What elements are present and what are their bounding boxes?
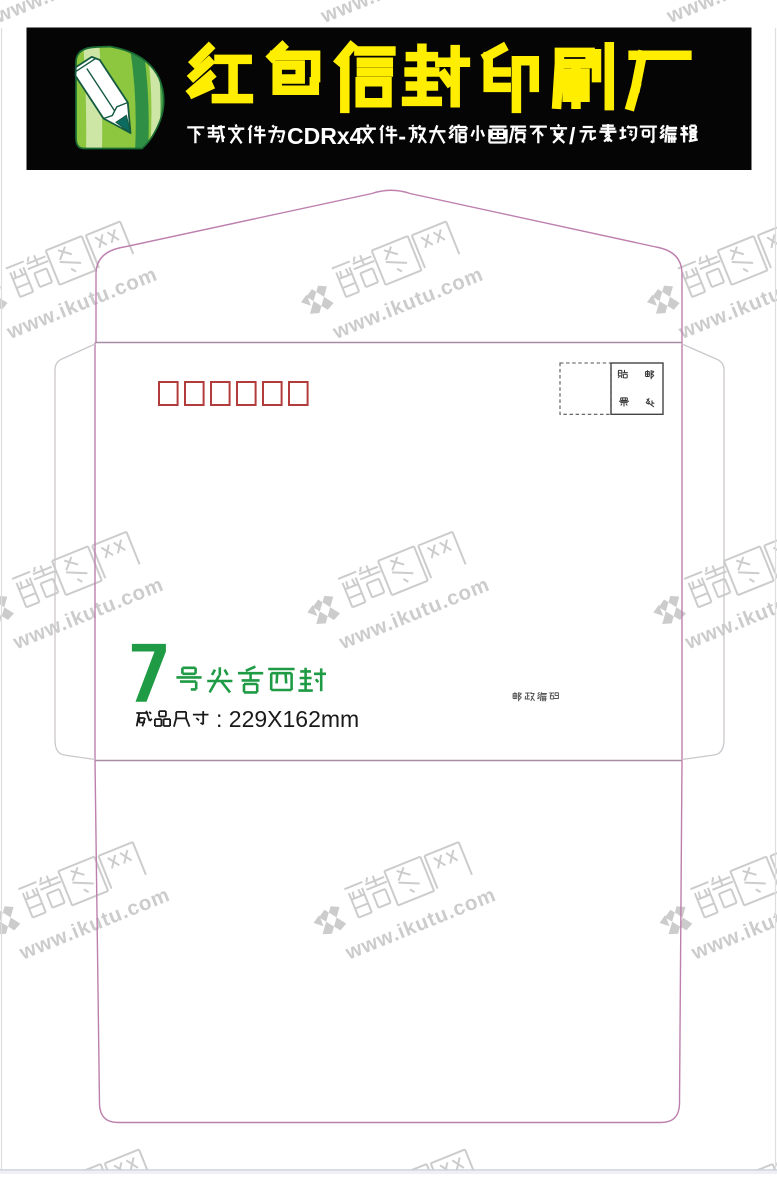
svg-text:: 229X162mm: : 229X162mm — [216, 706, 359, 732]
svg-text:-: - — [398, 123, 406, 149]
svg-text:CDRx4: CDRx4 — [287, 123, 363, 149]
svg-text:/: / — [569, 123, 576, 149]
